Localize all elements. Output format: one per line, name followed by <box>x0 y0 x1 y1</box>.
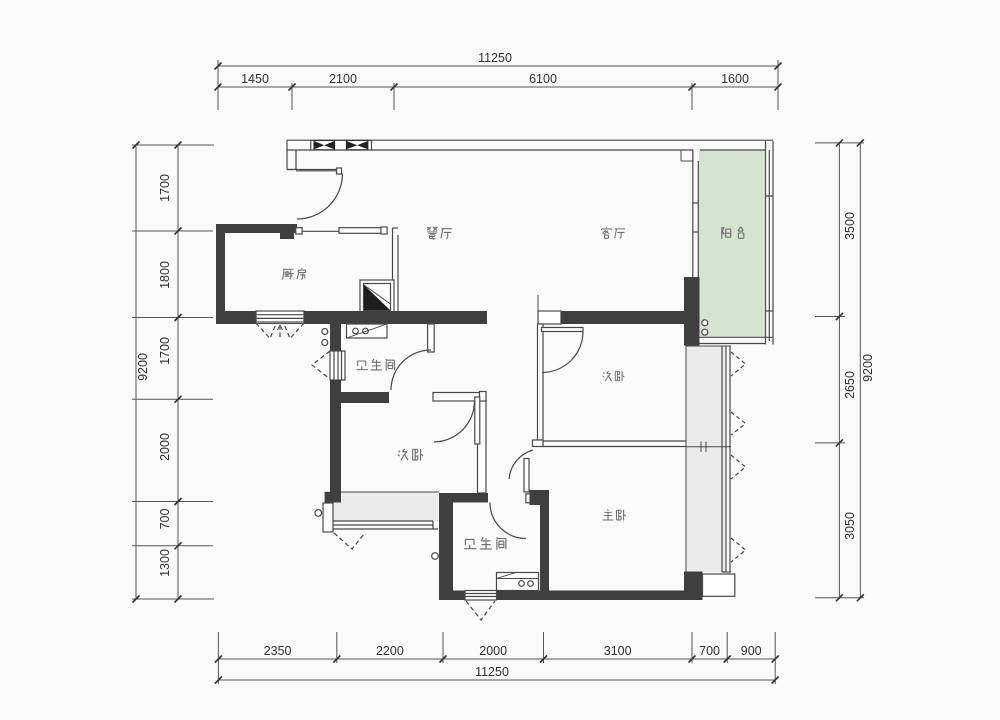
svg-text:2200: 2200 <box>376 644 404 658</box>
svg-text:11250: 11250 <box>478 51 512 65</box>
svg-text:1300: 1300 <box>158 549 172 577</box>
svg-text:9200: 9200 <box>861 354 875 382</box>
svg-text:1600: 1600 <box>721 72 749 86</box>
svg-text:900: 900 <box>741 644 762 658</box>
svg-text:700: 700 <box>699 644 720 658</box>
svg-text:9200: 9200 <box>136 353 150 381</box>
svg-text:1700: 1700 <box>158 174 172 202</box>
svg-text:6100: 6100 <box>529 72 557 86</box>
svg-text:1700: 1700 <box>158 337 172 365</box>
svg-text:11250: 11250 <box>475 665 509 679</box>
svg-text:2650: 2650 <box>843 371 857 399</box>
svg-text:2000: 2000 <box>479 644 507 658</box>
svg-text:2350: 2350 <box>264 644 292 658</box>
svg-text:3500: 3500 <box>843 212 857 240</box>
svg-text:3100: 3100 <box>604 644 632 658</box>
svg-text:1800: 1800 <box>158 261 172 289</box>
svg-text:2100: 2100 <box>329 72 357 86</box>
svg-text:1450: 1450 <box>241 72 269 86</box>
svg-text:3050: 3050 <box>843 512 857 540</box>
svg-text:700: 700 <box>158 509 172 530</box>
svg-text:2000: 2000 <box>158 433 172 461</box>
